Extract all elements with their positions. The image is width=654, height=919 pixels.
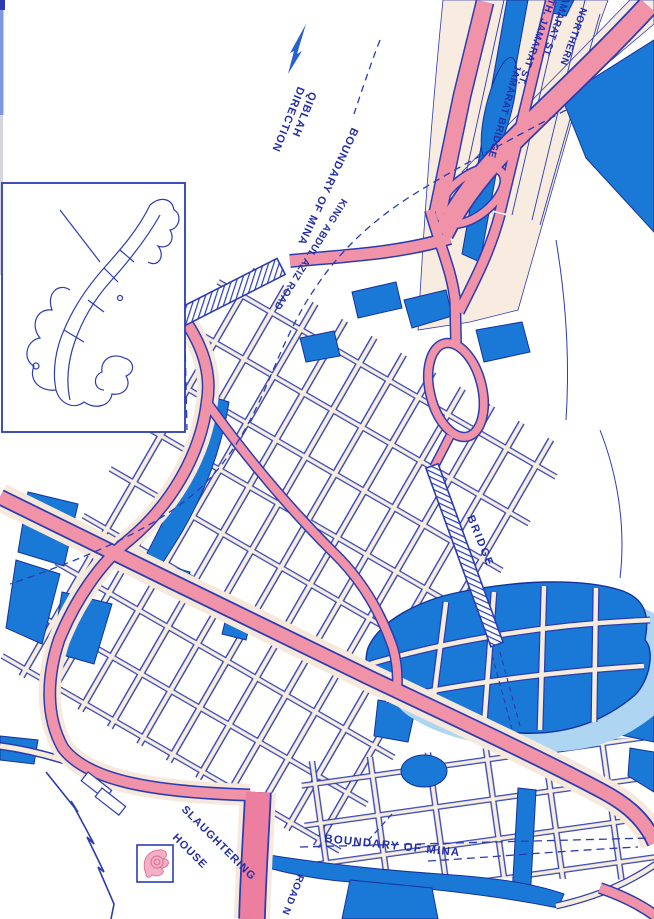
- mina-map-page: QIBLAH DIRECTION BOUNDARY OF MINA KING A…: [0, 0, 654, 919]
- south-wide-road: [252, 792, 258, 919]
- inset-overview-map: [2, 183, 185, 432]
- mina-map: QIBLAH DIRECTION BOUNDARY OF MINA KING A…: [0, 0, 654, 919]
- road-label-partial: ROAD N: [279, 873, 305, 916]
- slaughtering-house-icon: [137, 845, 173, 882]
- slaughtering-house-label-line2: HOUSE: [170, 832, 210, 872]
- boundary-zigzag: [46, 772, 126, 919]
- qiblah-arrow-icon: [288, 24, 306, 74]
